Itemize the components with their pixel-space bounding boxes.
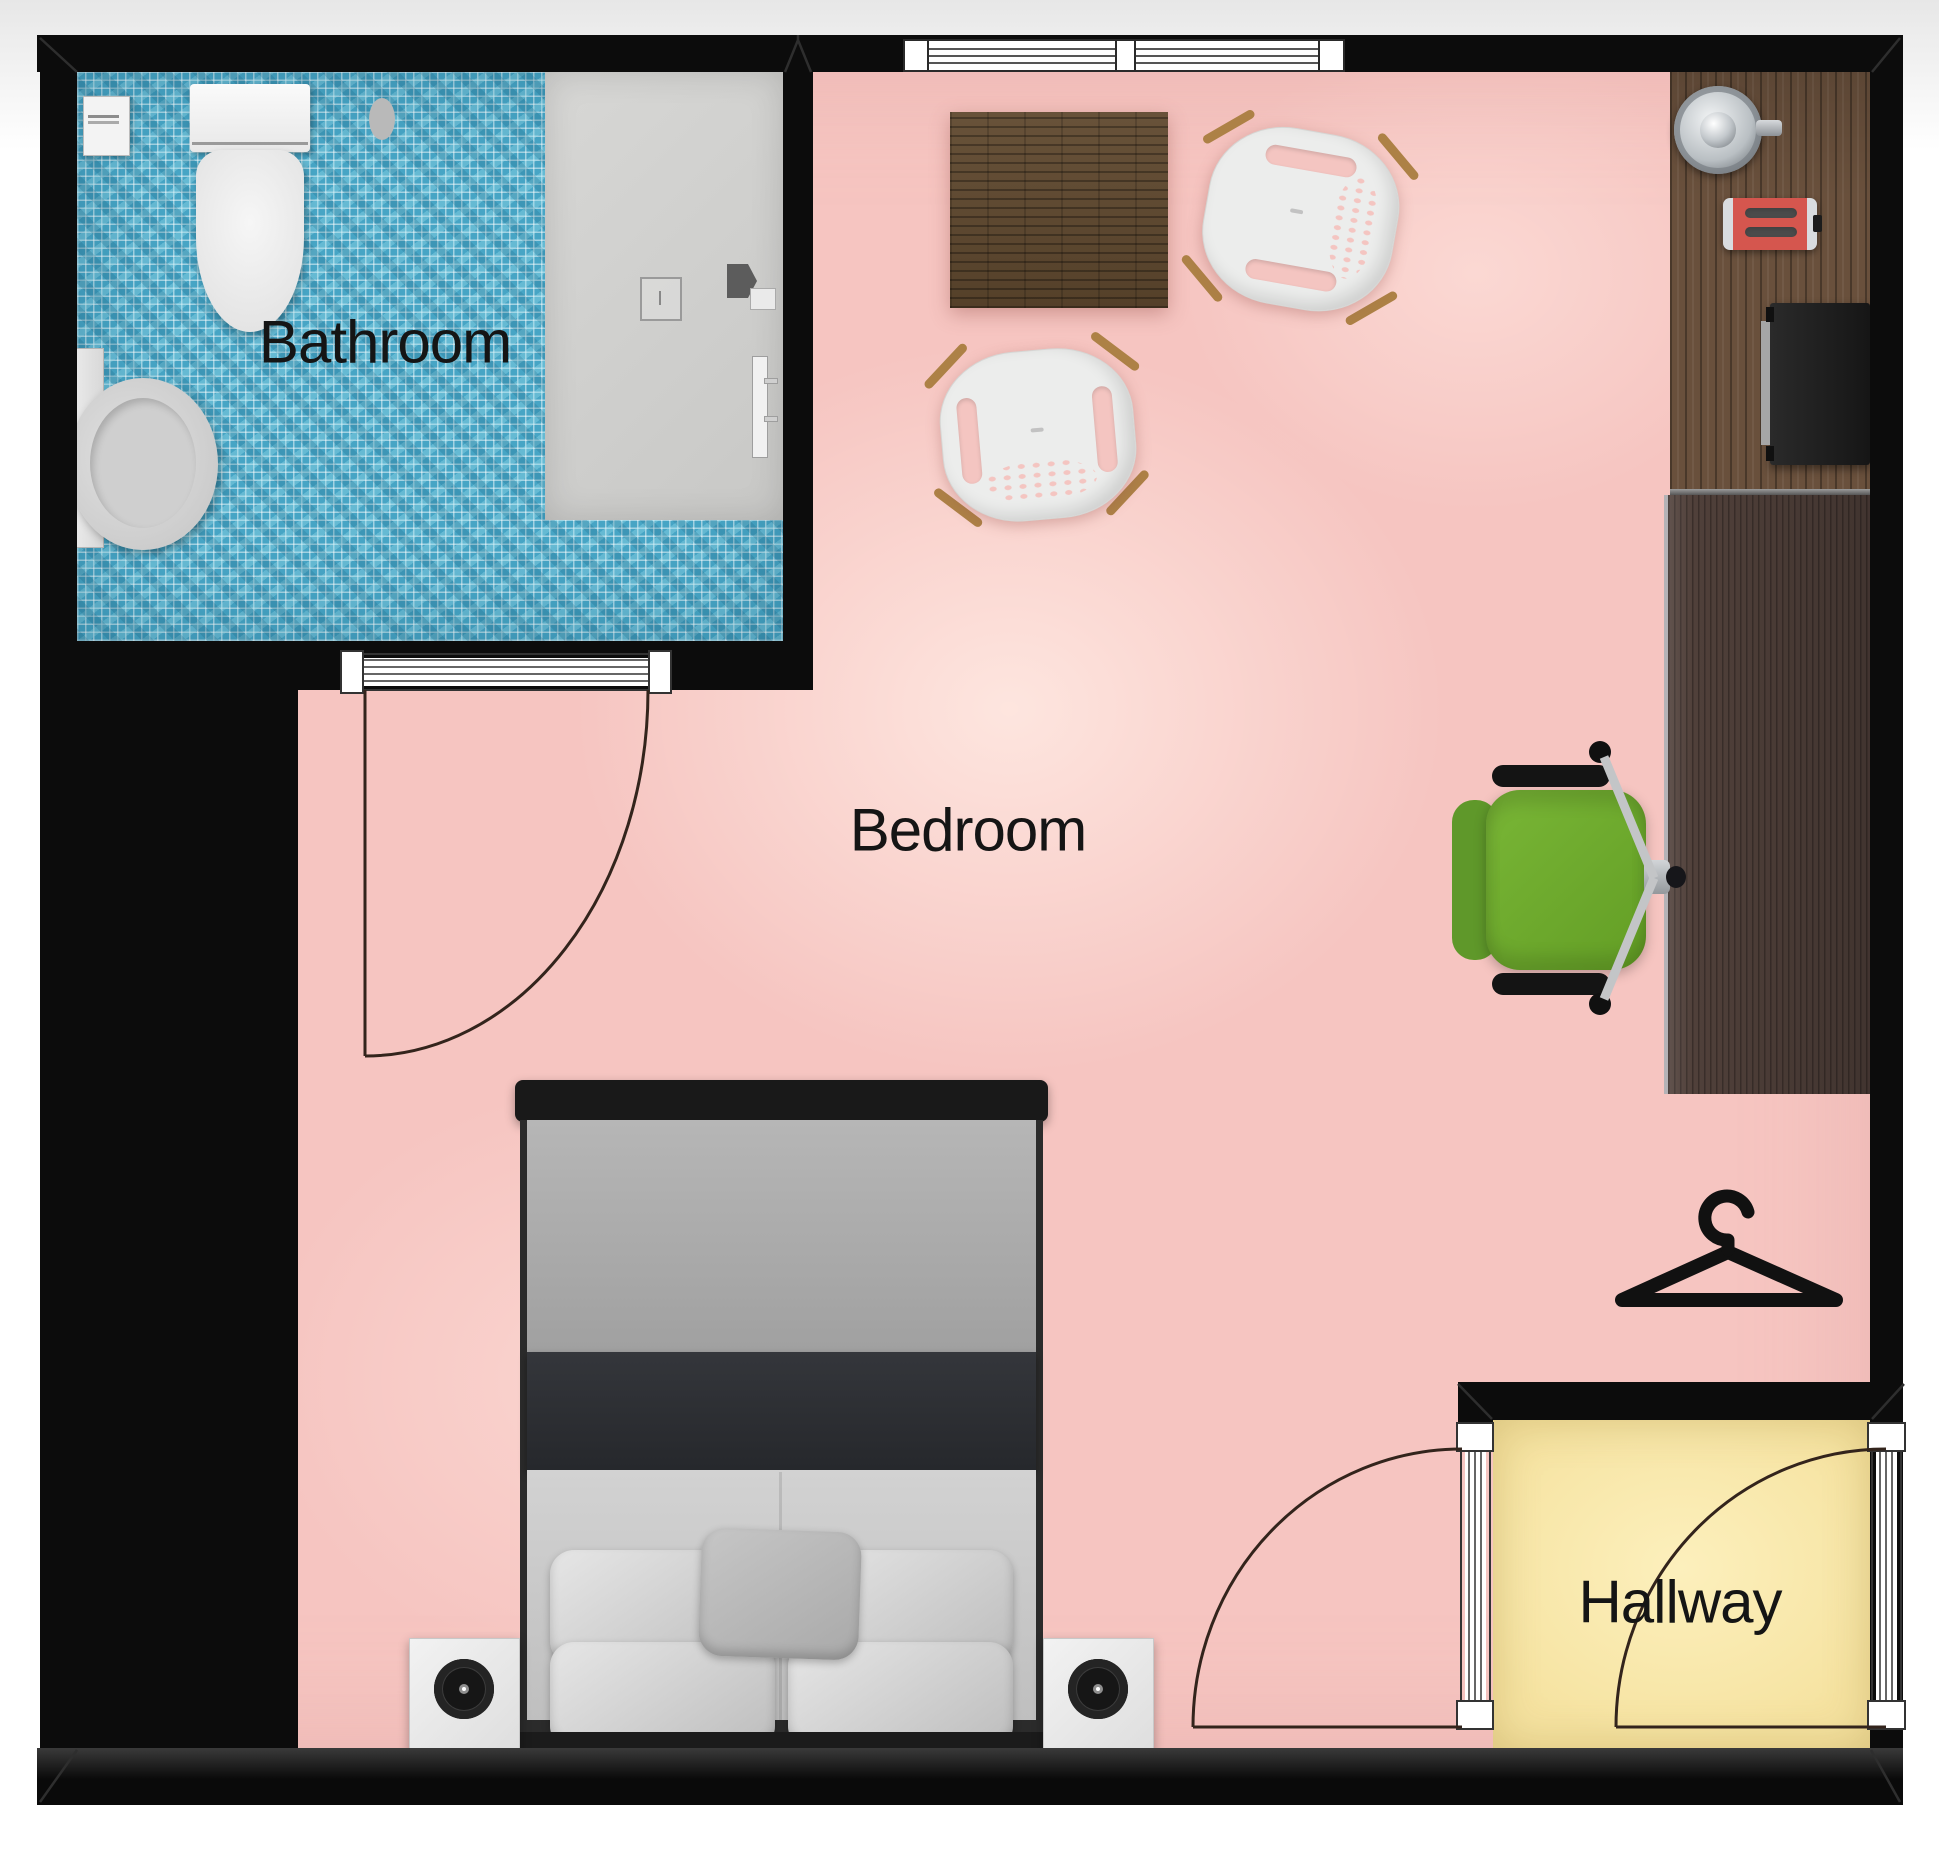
bathroom-label: Bathroom (259, 308, 511, 377)
speaker-icon (434, 1659, 494, 1719)
office-chair-caster (1589, 741, 1611, 763)
door-cap (1867, 1700, 1906, 1730)
shower-rail (752, 356, 768, 458)
window-mullion (1115, 39, 1136, 72)
window-frame-cap (1318, 39, 1345, 72)
window (903, 39, 1345, 72)
nightstand-right (1043, 1638, 1154, 1754)
bed-foot-rail (515, 1080, 1048, 1122)
hallway-door-right (1871, 1450, 1902, 1702)
shell-chair-upper (1178, 105, 1422, 331)
throw-pillow (698, 1527, 862, 1661)
floorplan-canvas: { "plan": { "type": "apartment-floorplan… (0, 0, 1939, 1850)
floor-drain (369, 98, 395, 140)
office-chair-armrest (1492, 765, 1610, 787)
toilet-bowl (196, 150, 304, 332)
toilet-tank (190, 84, 310, 152)
toilet-paper-holder (83, 96, 130, 156)
shower-rail-bracket (764, 416, 778, 422)
door-cap (1456, 1422, 1494, 1452)
shower-rail-bracket (764, 378, 778, 384)
wall-bottom (37, 1748, 1903, 1805)
double-bed (515, 1080, 1048, 1775)
shower-soap-tray (750, 288, 776, 310)
door-cap (648, 650, 672, 694)
window-frame-cap (903, 39, 929, 72)
office-chair-caster (1589, 993, 1611, 1015)
speaker-icon (1068, 1659, 1128, 1719)
sink-basin (68, 378, 218, 550)
kettle-icon (1674, 86, 1762, 174)
office-chair-armrest (1492, 973, 1610, 995)
chair-shell (1191, 115, 1411, 324)
bedroom-label: Bedroom (850, 796, 1086, 865)
office-chair-seat (1486, 790, 1646, 970)
desk (1668, 495, 1876, 1094)
shell-chair-lower (926, 335, 1149, 532)
wall-left-column (40, 641, 298, 1805)
tv-screen (1770, 303, 1870, 465)
bathroom-door (344, 653, 670, 691)
wall-bathroom-right (783, 35, 813, 690)
wall-hallway-top (1458, 1382, 1903, 1420)
nightstand-left (409, 1638, 520, 1754)
shower-mixer-knob (640, 277, 682, 321)
door-cap (1867, 1422, 1906, 1452)
toaster-icon (1723, 198, 1817, 250)
hallway-door-left (1460, 1450, 1491, 1702)
office-chair-knob (1666, 866, 1686, 888)
dining-table (950, 112, 1168, 308)
hallway-label: Hallway (1578, 1568, 1781, 1637)
bed-folded-blanket (527, 1352, 1036, 1470)
door-cap (340, 650, 364, 694)
door-cap (1456, 1700, 1494, 1730)
